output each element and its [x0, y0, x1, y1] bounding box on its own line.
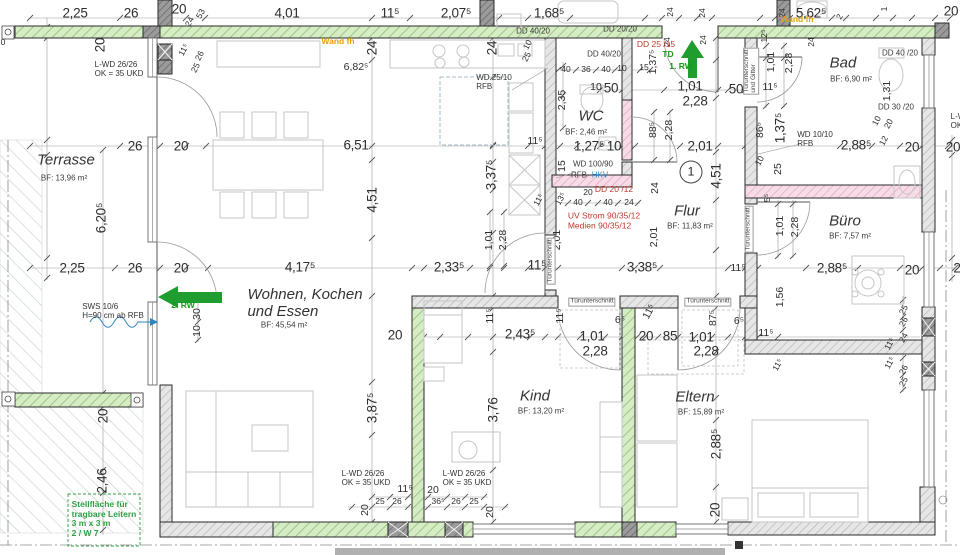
dim-label: 20 — [946, 139, 960, 154]
dim-label: 1,01 — [766, 52, 778, 72]
room-label: Wohnen, Kochen und Essen — [247, 287, 362, 321]
dim-label: 24 — [666, 7, 676, 16]
buero-desk — [852, 256, 904, 304]
dim-label: 1,01 — [579, 328, 604, 343]
dim-label: 3,76 — [485, 397, 500, 422]
dim-label: 24 — [807, 37, 817, 46]
dim-label: 6,82⁵ — [344, 62, 369, 74]
dim-label: 87⁵ — [708, 310, 720, 326]
door — [157, 77, 217, 137]
annotation-label: DD 40 /20 — [882, 50, 918, 59]
dim-label: 1,56 — [775, 287, 787, 307]
annotation-label: UV Strom 90/35/12 Medien 90/35/12 — [568, 211, 640, 230]
dim-label: 2,25 — [62, 5, 87, 20]
dim-label: 4,01 — [274, 5, 299, 20]
dim-label: 1,01 — [484, 230, 496, 250]
dim-label: 24 — [699, 35, 709, 44]
dim-label: 20 — [485, 506, 497, 518]
dim-label: 2,88⁵ — [817, 260, 847, 275]
dimension-lines — [0, 15, 960, 545]
room-area: BF: 15,89 m² — [678, 409, 724, 418]
room-label: Kind — [520, 389, 550, 406]
dim-label: 50 — [729, 81, 743, 96]
annotation-label: WD 100/90 — [573, 161, 613, 170]
dim-label: 2,46 — [94, 468, 109, 493]
annotation-label: L-WD 26/26 OK = 35 UKD — [95, 61, 144, 79]
dim-label: 40 — [561, 65, 570, 75]
dim-label: 2,28 — [682, 93, 707, 108]
room-area: BF: 11,83 m² — [667, 223, 713, 232]
dim-label: 20 — [427, 485, 439, 497]
dining-set — [213, 41, 323, 218]
dim-label: 6⁵ — [615, 315, 625, 327]
dim-label: 40 — [573, 198, 582, 208]
dim-label: 11⁵ — [527, 136, 542, 148]
dim-label: 36 — [581, 65, 590, 75]
dim-label: 2,28 — [498, 230, 510, 250]
kitchen — [390, 40, 545, 215]
dim-label: 88⁵ — [648, 122, 660, 138]
dim-label: 2,07⁵ — [441, 5, 471, 20]
annotation-label: Türunterschnitt — [684, 298, 731, 307]
room-label: Eltern — [675, 390, 714, 407]
dim-label: 11⁵ — [555, 308, 567, 323]
room-label: Bad — [830, 56, 857, 73]
room-area: BF: 13,20 m² — [518, 408, 564, 417]
annotation-label: DD 30 /20 — [878, 104, 914, 113]
annotation-label: SWS 10/6 H=90 cm ab RFB — [82, 303, 144, 321]
room-area: BF: 6,90 m² — [830, 76, 872, 85]
dim-label: 24 — [698, 8, 708, 17]
dim-label: 20 — [172, 1, 186, 16]
dim-label: 2,28 — [790, 217, 802, 237]
dim-label: 85 — [663, 328, 677, 343]
dim-label: 2,28 — [784, 53, 796, 73]
eltern-furniture — [637, 375, 868, 522]
dim-label: 24 — [364, 41, 379, 55]
dim-label: 11⁵ — [397, 484, 412, 496]
floor-plan: 2,2526204,0111⁵2,07⁵1,68⁵5,62⁵2053242424… — [0, 0, 960, 555]
annotation-label: TD — [662, 50, 673, 60]
annotation-label: DD 40/20 — [587, 51, 621, 60]
dim-label: 4,51 — [364, 187, 379, 212]
dim-label: 25 — [773, 163, 785, 175]
dim-label: 10 — [590, 82, 602, 94]
dim-label: 2,43⁵ — [505, 326, 535, 341]
room-label: Büro — [829, 214, 861, 231]
dim-label: 3,87⁵ — [364, 393, 379, 423]
dim-label: 10 — [192, 325, 204, 337]
room-area: BF: 13,96 m² — [41, 175, 87, 184]
annotation-label: Türunterschnitt — [745, 205, 754, 252]
dim-label: 1,37⁵ — [772, 113, 787, 143]
dim-label: 11⁵ — [762, 82, 777, 94]
dim-label: 3,37⁵ — [483, 160, 498, 190]
annotation-label: Wand fh — [780, 15, 813, 25]
dim-label: 1,01 — [677, 78, 702, 93]
dim-label: 5⁵ — [763, 194, 773, 202]
dim-label: 86⁵ — [755, 122, 767, 138]
annotation-label: WD 25/10 RFB — [476, 74, 512, 92]
room-label: Flur — [674, 204, 700, 221]
dim-label: 11⁵ — [730, 263, 745, 275]
dim-label: 6⁵ — [734, 316, 744, 328]
dim-label: 2,01 — [687, 138, 712, 153]
dim-label: 4,17⁵ — [285, 259, 315, 274]
dim-label: 20 — [360, 504, 372, 516]
dim-label: 20 — [707, 503, 722, 517]
dim-label: 25 — [469, 497, 478, 507]
dim-label: 12⁵ — [760, 30, 770, 43]
annotation-label: Stellfläche für tragbare Leitern 3 m x 3… — [72, 500, 137, 538]
dim-label: 1 — [880, 7, 890, 12]
dim-label: 1,01 — [688, 329, 713, 344]
dim-label: 2,28 — [582, 343, 607, 358]
dim-label: 1,37⁵ — [648, 50, 660, 75]
dim-label: 24 — [624, 198, 633, 208]
dim-label: 2 — [953, 260, 960, 275]
dim-label: 20 — [944, 3, 958, 18]
dim-label: 26 — [451, 497, 460, 507]
room-area: BF: 45,54 m² — [261, 322, 307, 331]
dim-label: 11⁵ — [381, 5, 400, 20]
dim-label: 40 — [601, 65, 610, 75]
dim-label: 4,51 — [708, 163, 723, 188]
dim-label: 20 — [174, 260, 188, 275]
annotation-label: L-WD 26/26 OK = 35 UKD — [443, 470, 492, 488]
dim-label: 26 — [124, 5, 138, 20]
dim-label: 20 — [388, 327, 402, 342]
annotation-label: DD 20/20 — [603, 26, 637, 35]
dim-label: 20 — [905, 262, 919, 277]
annotation-label: DD 20 /12 — [595, 185, 633, 195]
annotation-label: WD 10/10 RFB — [797, 131, 833, 149]
dim-label: 15 — [557, 160, 569, 172]
room-area: BF: 7,57 m² — [829, 233, 871, 242]
dim-label: 3,38⁵ — [627, 259, 657, 274]
dim-label: 26 — [128, 260, 142, 275]
annotation-label: HKV — [592, 172, 608, 181]
dim-label: 24 — [650, 182, 662, 194]
annotation-label: Türunterschnitt — [547, 237, 556, 284]
escape-route-arrow-up — [681, 40, 704, 78]
dim-label: 2,01 — [649, 227, 661, 247]
dim-label: 2,88⁵ — [708, 429, 723, 459]
annotation-label: L-WD 26/26 OK = 35 UKD — [951, 113, 960, 131]
dim-label: 10 — [607, 138, 621, 153]
markers-and-symbols — [68, 40, 947, 546]
dim-label: 6,51 — [343, 137, 368, 152]
dim-label: 11⁵ — [485, 308, 497, 323]
dim-label: 2,35 — [557, 90, 569, 110]
room-label: WC — [579, 109, 604, 126]
dim-label: 36⁵ — [432, 497, 445, 507]
room-label: Terrasse — [37, 153, 95, 170]
annotation-label: Wand fh — [321, 37, 354, 47]
annotation-label: Türunterschnitt und Gitter — [743, 47, 759, 94]
dim-label: 2,88⁵ — [841, 137, 871, 152]
annotation-label: DD 40/20 — [516, 28, 550, 37]
annotation-label: L-WD 26/26 OK = 35 UKD — [342, 470, 391, 488]
dim-label: 6,20⁵ — [93, 203, 108, 233]
dim-label: 20 — [174, 138, 188, 153]
dim-label: 20 — [639, 328, 653, 343]
dim-label: 24 — [484, 41, 499, 55]
dim-label: 2,28 — [664, 120, 676, 140]
annotation-label: 1. RW — [669, 62, 692, 72]
dim-label: 1,31 — [882, 81, 894, 101]
dim-label: 2,33⁵ — [434, 259, 464, 274]
dim-label: 20 — [583, 188, 592, 198]
dim-label: 50 — [604, 80, 618, 95]
annotation-label: 2. RW — [171, 301, 194, 311]
terrace-hatch — [0, 140, 143, 533]
dim-label: 11⁵ — [758, 328, 773, 340]
dim-label: 40 — [603, 198, 612, 208]
dim-label: 25 — [375, 497, 384, 507]
dim-label: 2,28 — [693, 343, 718, 358]
dim-label: 20 — [95, 409, 110, 423]
dim-label: 26 — [392, 497, 401, 507]
dim-label: 26 — [128, 138, 142, 153]
sofa — [186, 391, 313, 507]
dim-label: 0 — [1, 38, 6, 48]
dim-label: 1,01 — [775, 216, 787, 236]
annotation-label: RFB — [571, 172, 587, 181]
dim-label: 1,27⁵ — [574, 138, 604, 153]
annotation-label: Türunterschnitt — [568, 298, 615, 307]
dim-label: 2,25 — [59, 260, 84, 275]
dim-label: 10 — [617, 64, 626, 74]
position-marker: 1 — [688, 165, 695, 178]
room-area: BF: 2,46 m² — [565, 129, 607, 138]
dim-label: 20 — [905, 139, 919, 154]
dim-label: 11⁵ — [528, 257, 547, 272]
dim-label: 20 — [92, 38, 107, 52]
dim-label: 1,68⁵ — [534, 5, 564, 20]
